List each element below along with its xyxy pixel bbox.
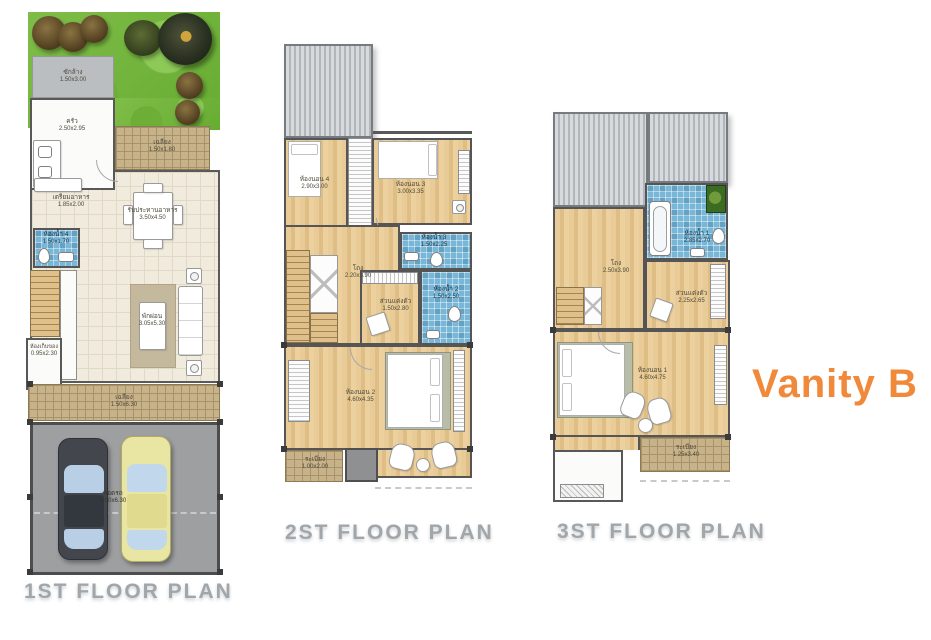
dining-table	[133, 192, 173, 240]
pillow	[562, 383, 572, 411]
coffee-table	[139, 302, 166, 350]
column	[217, 569, 223, 575]
wardrobe	[362, 272, 418, 284]
toilet-icon	[712, 228, 725, 244]
wardrobe	[288, 360, 310, 422]
column	[467, 446, 473, 452]
dining-chair	[123, 205, 133, 225]
wall-segment	[373, 131, 472, 134]
sink-icon	[404, 252, 419, 261]
floorplan-sheet: ซักล้าง 1.50x3.00 ครัว 2.50x2.95 เฉลียง …	[0, 0, 931, 640]
toilet-icon	[448, 306, 461, 322]
car-windshield	[64, 465, 104, 493]
roof-deck-2f	[284, 44, 373, 138]
column	[217, 381, 223, 387]
car-roof	[127, 494, 167, 528]
toilet-icon	[430, 252, 443, 267]
column	[281, 446, 287, 452]
plan3-title: 3ST FLOOR PLAN	[557, 520, 737, 544]
tree-icon	[175, 100, 200, 125]
sink-icon	[426, 330, 440, 339]
wardrobe	[458, 150, 470, 194]
column	[27, 381, 33, 387]
column	[27, 494, 33, 500]
plan1-title: 1ST FLOOR PLAN	[24, 580, 204, 604]
pantry-counter	[34, 178, 82, 192]
dashed-line	[640, 480, 730, 482]
project-name: Vanity B	[752, 362, 918, 407]
car-dark	[58, 438, 108, 560]
stair-landing	[310, 255, 338, 313]
pillow	[428, 144, 437, 176]
dining-chair	[143, 183, 163, 193]
fan-icon	[452, 200, 466, 214]
balcony-3f	[640, 437, 730, 472]
fan-blade-icon	[456, 204, 464, 212]
ac-compressor	[560, 484, 604, 498]
sink-icon	[690, 248, 705, 257]
side-table	[638, 418, 653, 433]
stairs	[556, 287, 584, 325]
side-table	[416, 458, 430, 472]
pillow	[562, 349, 572, 377]
column	[217, 419, 223, 425]
fan-icon	[186, 360, 202, 376]
terrace	[28, 384, 220, 421]
balcony-2f	[285, 450, 343, 482]
plan2-title: 2ST FLOOR PLAN	[285, 521, 465, 545]
column	[281, 342, 287, 348]
roof-3f-right	[648, 112, 728, 183]
bathtub	[649, 201, 671, 256]
planter-box	[706, 185, 726, 213]
roof-3f-left	[553, 112, 648, 207]
car-windshield	[127, 464, 167, 492]
kitchen-sink	[38, 146, 52, 158]
wardrobe	[714, 345, 727, 405]
fan-icon	[186, 268, 202, 284]
column	[550, 327, 556, 333]
pillow	[430, 394, 440, 422]
bathtub-basin	[653, 206, 667, 252]
dining-chair	[143, 239, 163, 249]
pillow	[430, 358, 440, 386]
car-rear-window	[127, 530, 167, 550]
wardrobe	[710, 264, 726, 319]
column	[217, 494, 223, 500]
stairs	[310, 313, 338, 343]
column	[27, 569, 33, 575]
toilet-icon	[38, 248, 50, 264]
column	[27, 419, 33, 425]
car-yellow	[121, 436, 171, 562]
column	[467, 342, 473, 348]
column	[725, 327, 731, 333]
fan-blade-icon	[190, 272, 199, 281]
tree-icon	[176, 72, 203, 99]
laundry-area	[32, 56, 114, 98]
wardrobe	[348, 138, 372, 232]
tree-icon	[124, 20, 162, 56]
column	[550, 434, 556, 440]
stair-landing	[584, 287, 602, 325]
headboard	[453, 350, 465, 432]
stairs	[286, 250, 310, 343]
ac-unit	[345, 448, 378, 482]
tree-icon	[158, 13, 212, 65]
car-roof	[64, 495, 104, 527]
sink-icon	[58, 252, 74, 262]
stair-corridor	[60, 270, 77, 380]
dining-chair	[173, 205, 183, 225]
car-rear-window	[64, 529, 104, 549]
fan-blade-icon	[190, 364, 199, 373]
sofa	[178, 286, 203, 356]
stairs	[30, 270, 60, 337]
bedroom-1-lower	[553, 437, 640, 450]
pillow	[291, 144, 318, 155]
porch	[115, 126, 210, 170]
dashed-line	[375, 487, 472, 489]
tree-icon	[80, 15, 108, 43]
kitchen-stove	[38, 166, 52, 178]
column	[725, 434, 731, 440]
